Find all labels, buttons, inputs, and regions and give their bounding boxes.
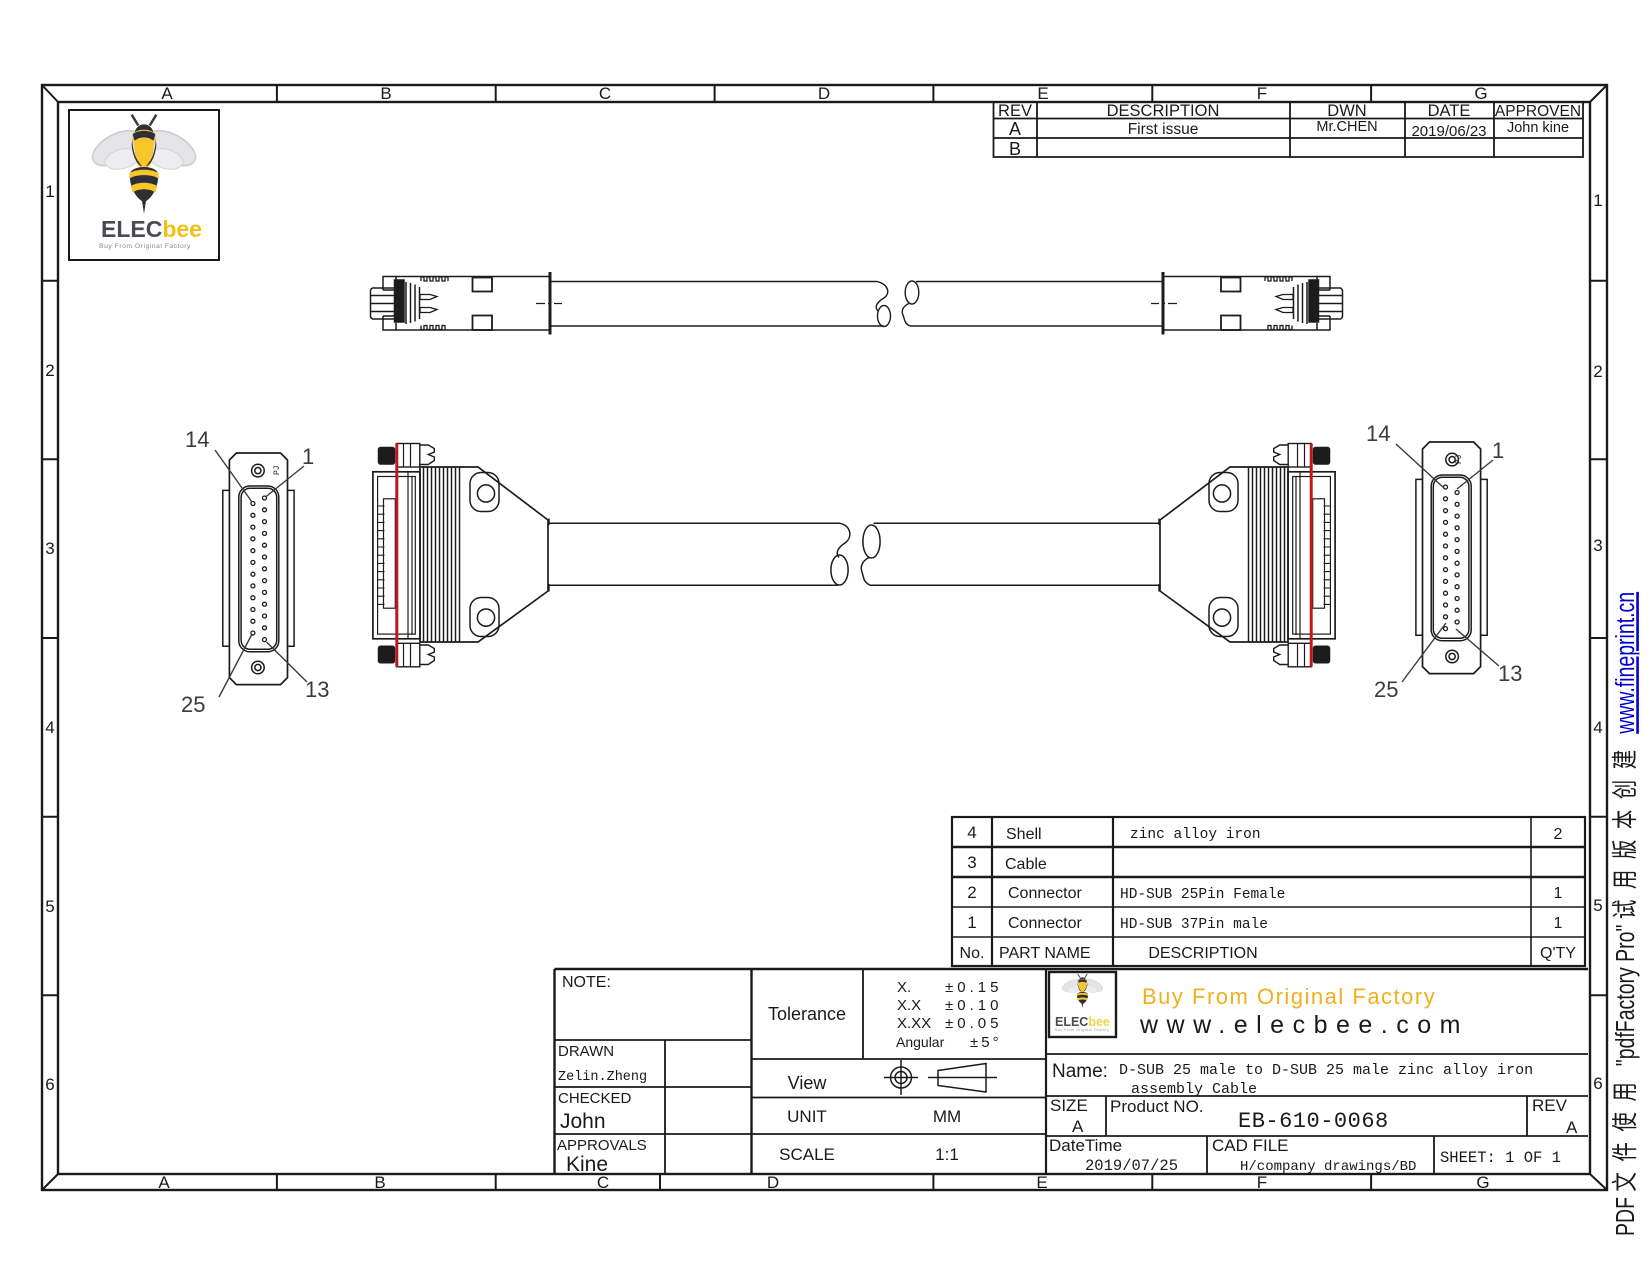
svg-text:UNIT: UNIT [787, 1107, 827, 1126]
svg-text:A: A [158, 1173, 170, 1192]
svg-text:EB-610-0068: EB-610-0068 [1238, 1109, 1389, 1134]
svg-text:A: A [1072, 1117, 1084, 1136]
svg-text:CHECKED: CHECKED [558, 1090, 632, 1107]
svg-text:ELECbee: ELECbee [1055, 1015, 1110, 1029]
svg-text:PART NAME: PART NAME [999, 945, 1091, 962]
svg-text:A: A [1566, 1118, 1578, 1137]
svg-text:2: 2 [967, 883, 976, 902]
svg-text:REV: REV [998, 102, 1032, 120]
svg-text:6: 6 [1593, 1074, 1602, 1093]
svg-text:1: 1 [967, 913, 976, 932]
svg-text:Mr.CHEN: Mr.CHEN [1316, 119, 1377, 135]
svg-text:13: 13 [1498, 661, 1522, 686]
svg-text:Kine: Kine [566, 1153, 608, 1176]
svg-text:F: F [1257, 84, 1267, 103]
svg-text:6: 6 [45, 1075, 54, 1094]
svg-text:PDF 文件使用 "pdfFactory Pro" 试用版本: PDF 文件使用 "pdfFactory Pro" 试用版本创建 www.fin… [1610, 592, 1639, 1236]
svg-text:Zelin.Zheng: Zelin.Zheng [558, 1070, 647, 1085]
svg-text:1: 1 [45, 182, 54, 201]
svg-text:APPROVEN: APPROVEN [1495, 103, 1581, 120]
svg-text:Product NO.: Product NO. [1110, 1097, 1204, 1116]
svg-text:Buy From Original Factory: Buy From Original Factory [1055, 1028, 1109, 1032]
svg-text:DESCRIPTION: DESCRIPTION [1107, 102, 1220, 120]
svg-text:E: E [1037, 84, 1048, 103]
svg-text:B: B [1009, 139, 1021, 159]
svg-text:25: 25 [181, 692, 205, 717]
svg-text:4: 4 [45, 718, 54, 737]
svg-text:B: B [374, 1173, 385, 1192]
svg-text:2: 2 [1554, 826, 1563, 843]
svg-text:3: 3 [967, 853, 976, 872]
svg-text:±0.05: ±0.05 [945, 1015, 1002, 1032]
svg-text:X.X: X.X [897, 997, 921, 1014]
svg-text:No.: No. [960, 945, 985, 962]
svg-text:2019/07/25: 2019/07/25 [1085, 1157, 1178, 1175]
svg-text:SCALE: SCALE [779, 1145, 835, 1164]
svg-text:1: 1 [1593, 191, 1602, 210]
svg-text:5: 5 [1593, 896, 1602, 915]
svg-text:Q'TY: Q'TY [1540, 945, 1576, 962]
svg-text:E: E [1036, 1173, 1047, 1192]
svg-text:PJ: PJ [273, 465, 282, 475]
svg-text:SHEET: 1 OF 1: SHEET: 1 OF 1 [1440, 1149, 1561, 1167]
svg-text:Shell: Shell [1006, 826, 1042, 843]
svg-text:D: D [818, 84, 830, 103]
svg-text:Cable: Cable [1005, 856, 1047, 873]
svg-text:REV: REV [1532, 1096, 1568, 1115]
svg-text:Tolerance: Tolerance [768, 1004, 846, 1024]
svg-text:Connector: Connector [1008, 915, 1082, 932]
svg-text:NOTE:: NOTE: [562, 974, 611, 991]
svg-text:3: 3 [45, 539, 54, 558]
svg-text:View: View [788, 1073, 828, 1093]
svg-text:DWN: DWN [1327, 102, 1366, 120]
svg-text:14: 14 [1366, 421, 1390, 446]
svg-text:1: 1 [1554, 885, 1563, 902]
svg-text:A: A [161, 84, 173, 103]
svg-text:G: G [1476, 1173, 1489, 1192]
svg-text:X.XX: X.XX [897, 1015, 931, 1032]
svg-text:14: 14 [185, 427, 209, 452]
svg-text:MM: MM [933, 1107, 961, 1126]
svg-text:DRAWN: DRAWN [558, 1043, 614, 1060]
svg-text:APPROVALS: APPROVALS [557, 1137, 647, 1154]
svg-text:www.elecbee.com: www.elecbee.com [1139, 1011, 1469, 1039]
svg-text:HD-SUB 25Pin Female: HD-SUB 25Pin Female [1120, 887, 1285, 903]
svg-text:John kine: John kine [1507, 120, 1569, 136]
svg-text:HD-SUB 37Pin male: HD-SUB 37Pin male [1120, 917, 1268, 933]
svg-text:X.: X. [897, 979, 911, 996]
svg-text:1: 1 [1492, 438, 1504, 463]
svg-text:assembly Cable: assembly Cable [1131, 1081, 1257, 1098]
svg-text:First issue: First issue [1128, 121, 1199, 138]
svg-text:D: D [767, 1173, 779, 1192]
svg-text:5: 5 [45, 897, 54, 916]
svg-text:±0.15: ±0.15 [945, 979, 1002, 996]
svg-text:H/company drawings/BD: H/company drawings/BD [1240, 1159, 1416, 1175]
svg-text:1:1: 1:1 [935, 1145, 959, 1164]
svg-text:ELECbee: ELECbee [101, 216, 202, 242]
svg-text:13: 13 [305, 677, 329, 702]
svg-text:B: B [380, 84, 391, 103]
svg-text:A: A [1009, 119, 1021, 139]
svg-text:3: 3 [1593, 536, 1602, 555]
svg-text:±5°: ±5° [970, 1034, 1002, 1051]
svg-text:4: 4 [967, 823, 976, 842]
svg-text:DESCRIPTION: DESCRIPTION [1148, 945, 1257, 962]
svg-text:C: C [599, 84, 611, 103]
svg-text:CAD FILE: CAD FILE [1212, 1136, 1289, 1155]
svg-text:4: 4 [1593, 718, 1602, 737]
svg-text:2019/06/23: 2019/06/23 [1411, 123, 1486, 140]
svg-text:G: G [1474, 84, 1487, 103]
svg-text:Name:: Name: [1052, 1061, 1108, 1082]
svg-text:F: F [1257, 1173, 1267, 1192]
svg-text:D-SUB 25 male to D-SUB 25 male: D-SUB 25 male to D-SUB 25 male zinc allo… [1119, 1062, 1533, 1079]
svg-text:25: 25 [1374, 677, 1398, 702]
svg-text:John: John [560, 1110, 606, 1133]
svg-text:1: 1 [1554, 915, 1563, 932]
svg-text:Connector: Connector [1008, 885, 1082, 902]
svg-text:2: 2 [45, 361, 54, 380]
svg-text:DATE: DATE [1428, 102, 1471, 120]
svg-text:2: 2 [1593, 362, 1602, 381]
svg-text:PJ: PJ [1455, 454, 1464, 464]
svg-text:Angular: Angular [896, 1034, 945, 1050]
svg-text:DateTime: DateTime [1049, 1136, 1122, 1155]
svg-text:SIZE: SIZE [1050, 1096, 1088, 1115]
svg-text:Buy From Original Factory: Buy From Original Factory [1142, 984, 1436, 1009]
svg-text:±0.10: ±0.10 [945, 997, 1002, 1014]
svg-text:zinc alloy iron: zinc alloy iron [1130, 827, 1261, 843]
svg-text:Buy From Original Factory: Buy From Original Factory [99, 243, 191, 250]
svg-text:1: 1 [302, 444, 314, 469]
